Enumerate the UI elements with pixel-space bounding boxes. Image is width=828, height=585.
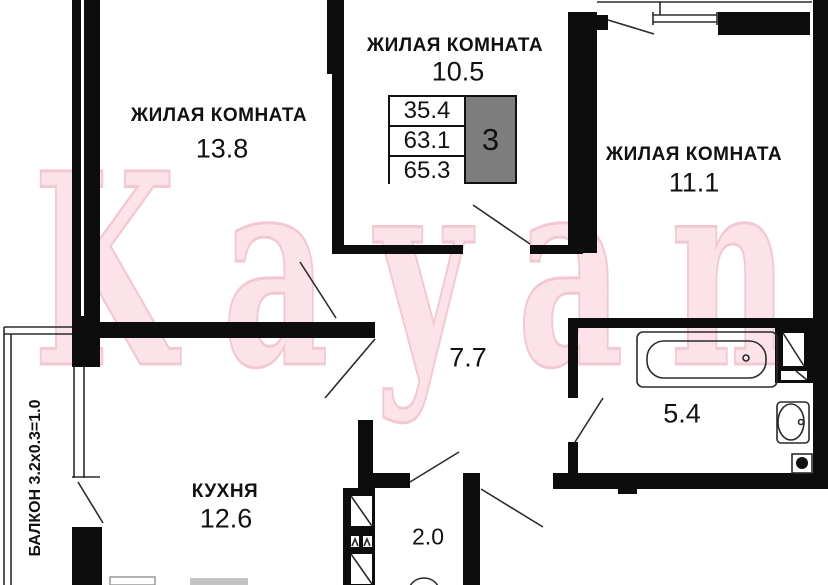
room-label-kitchen: КУХНЯ (192, 481, 258, 503)
wall-wc-right (463, 473, 480, 585)
wall-wc-top (361, 473, 410, 488)
room-label-living1: ЖИЛАЯ КОМНАТА (131, 105, 307, 127)
wall-living2-living3 (568, 12, 597, 253)
room-area-bathroom: 5.4 (663, 399, 701, 430)
wall-left-outer (72, 0, 100, 367)
washing-machine-drum (796, 457, 808, 469)
wall-loggia-left (575, 15, 608, 30)
wall-loggia-right (718, 12, 810, 35)
door-swing-living2 (473, 205, 530, 244)
sink-faucet (799, 420, 804, 425)
room-count-cell: 3 (466, 97, 515, 182)
room-area-kitchen: 12.6 (200, 504, 253, 535)
walls (72, 0, 828, 585)
room-area-living3: 11.1 (669, 168, 720, 199)
room-area-living2: 10.5 (432, 57, 485, 88)
wall-balcony-lower (72, 527, 102, 585)
loggia-door-swing (608, 20, 654, 34)
sink-basin (778, 404, 804, 440)
door-swing-corridor (481, 489, 543, 527)
area-info-values: 35.4 63.1 65.3 (390, 97, 466, 182)
wall-living3-bathroom (568, 318, 828, 328)
wall-bathroom-left-upper (568, 318, 578, 398)
wall-seam (81, 0, 84, 316)
area-info-table: 35.4 63.1 65.3 3 (388, 95, 517, 184)
balcony-door-swing (78, 482, 103, 523)
wall-tab (618, 489, 637, 494)
wall-living1-living2-top (327, 0, 344, 74)
area-apartment: 63.1 (390, 127, 464, 157)
legend-fragment (110, 577, 155, 585)
wall-bathroom-left-lower (568, 442, 578, 473)
toilet-icon (409, 578, 439, 585)
floor-plan-geometry (0, 0, 828, 585)
door-swing-wc (410, 452, 459, 482)
balcony-label: БАЛКОН 3.2x0.3=1.0 (27, 399, 45, 556)
vent-box-icon (780, 370, 808, 381)
wall-living2-bottom-left (332, 245, 463, 254)
door-swing-kitchen (325, 339, 375, 398)
area-total: 65.3 (390, 157, 464, 185)
room-area-living1: 13.8 (196, 134, 249, 165)
wall-living1-kitchen (72, 322, 375, 338)
area-living-total: 35.4 (390, 97, 464, 127)
room-label-living3: ЖИЛАЯ КОМНАТА (606, 144, 782, 166)
wall-bathroom-bottom (553, 473, 828, 489)
door-swing-living1 (300, 262, 336, 318)
room-area-wc: 2.0 (412, 524, 444, 551)
vent-box-icon (350, 535, 360, 548)
bathtub-drain (743, 355, 749, 361)
wall-living1-living2 (332, 70, 344, 254)
wall-right-outer (813, 0, 828, 489)
room-label-living2: ЖИЛАЯ КОМНАТА (367, 35, 543, 57)
legend-fragment (190, 578, 248, 585)
room-area-hallway: 7.7 (449, 343, 487, 374)
door-swing-bathroom (575, 398, 603, 442)
floor-plan: Kayan (0, 0, 828, 585)
